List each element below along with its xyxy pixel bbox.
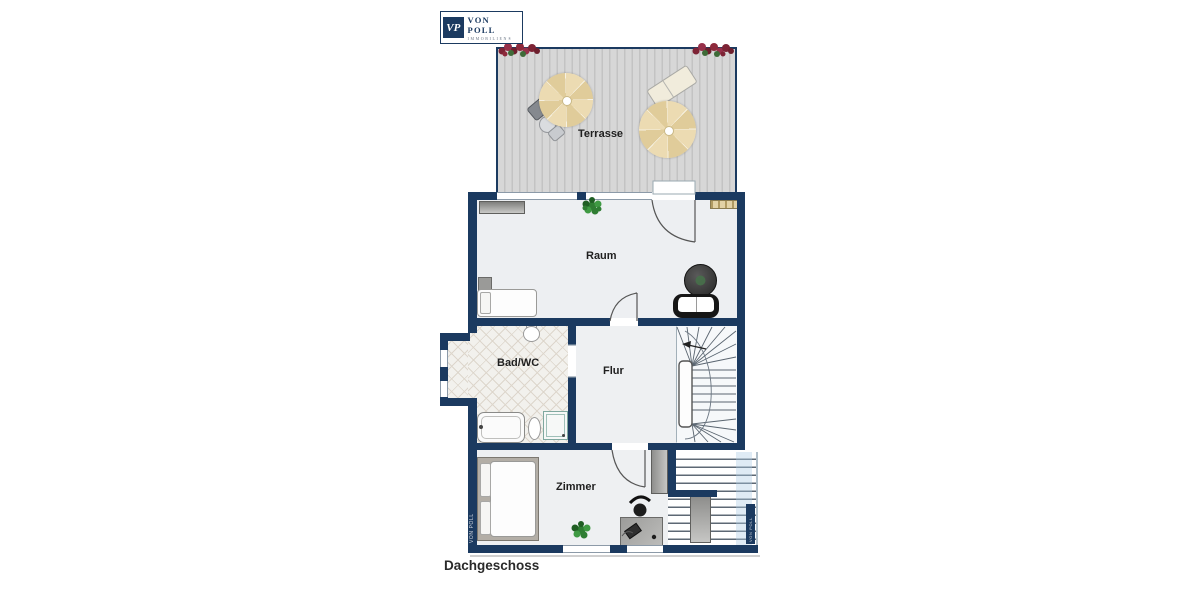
stair-floor bbox=[676, 326, 737, 443]
brand-subtitle: IMMOBILIEN® bbox=[468, 36, 520, 41]
zimmer-door-opening bbox=[612, 443, 648, 450]
window bbox=[440, 381, 448, 397]
wall bbox=[440, 367, 448, 381]
sofa bbox=[673, 294, 719, 318]
wall bbox=[440, 341, 448, 350]
wall bbox=[668, 490, 717, 497]
radiator bbox=[710, 200, 740, 209]
wall bbox=[610, 545, 627, 553]
flur-floor bbox=[576, 326, 676, 443]
toilet bbox=[523, 326, 540, 342]
terrace-door-opening bbox=[652, 192, 695, 200]
pillow bbox=[480, 292, 491, 314]
room-label-flur: Flur bbox=[603, 365, 624, 377]
wardrobe bbox=[690, 496, 711, 543]
watermark: VON POLL bbox=[469, 513, 475, 543]
wall bbox=[638, 318, 745, 326]
wall bbox=[468, 545, 563, 553]
pillow bbox=[480, 501, 491, 535]
shower-drain bbox=[562, 434, 565, 437]
wall bbox=[468, 443, 612, 450]
desk bbox=[620, 517, 663, 546]
wall bbox=[440, 398, 470, 406]
pillow bbox=[480, 463, 491, 497]
wardrobe bbox=[651, 448, 668, 494]
room-label-raum: Raum bbox=[586, 250, 617, 262]
brand-name: VON POLL bbox=[468, 15, 520, 35]
window bbox=[440, 350, 448, 367]
wall bbox=[663, 545, 758, 553]
wall bbox=[440, 333, 470, 341]
logo-text: VON POLL IMMOBILIEN® bbox=[468, 15, 520, 41]
bath-floor-dormer bbox=[448, 341, 468, 400]
terrace-deck bbox=[496, 47, 737, 193]
vonpoll-logo: VP VON POLL IMMOBILIEN® bbox=[440, 11, 523, 44]
coffee-table bbox=[684, 264, 717, 297]
faucet bbox=[479, 425, 483, 429]
window bbox=[586, 192, 652, 200]
wall bbox=[577, 192, 586, 200]
wall bbox=[468, 192, 497, 200]
wall bbox=[648, 443, 745, 450]
sill-line bbox=[470, 555, 760, 557]
wall bbox=[468, 200, 477, 333]
wall bbox=[568, 326, 576, 345]
wall bbox=[468, 318, 610, 326]
parasol-icon bbox=[539, 73, 593, 127]
room-label-zimmer: Zimmer bbox=[556, 481, 596, 493]
bathtub bbox=[477, 412, 525, 443]
double-bed-mattress bbox=[490, 461, 536, 537]
window bbox=[627, 545, 663, 553]
room-label-terrasse: Terrasse bbox=[578, 128, 623, 140]
floorplan-page: VP VON POLL IMMOBILIEN® bbox=[0, 0, 1200, 600]
vp-monogram-icon: VP bbox=[443, 17, 464, 38]
window bbox=[497, 192, 577, 200]
wall bbox=[568, 377, 576, 443]
sink bbox=[528, 417, 541, 440]
watermark-bar: VON POLL bbox=[746, 504, 755, 544]
sideboard bbox=[479, 201, 525, 214]
window bbox=[563, 545, 610, 553]
watermark: VON POLL bbox=[748, 517, 753, 542]
flur-door-opening bbox=[610, 318, 638, 326]
parasol-icon bbox=[639, 101, 696, 158]
floor-title: Dachgeschoss bbox=[444, 558, 539, 573]
room-label-bad: Bad/WC bbox=[497, 357, 539, 369]
